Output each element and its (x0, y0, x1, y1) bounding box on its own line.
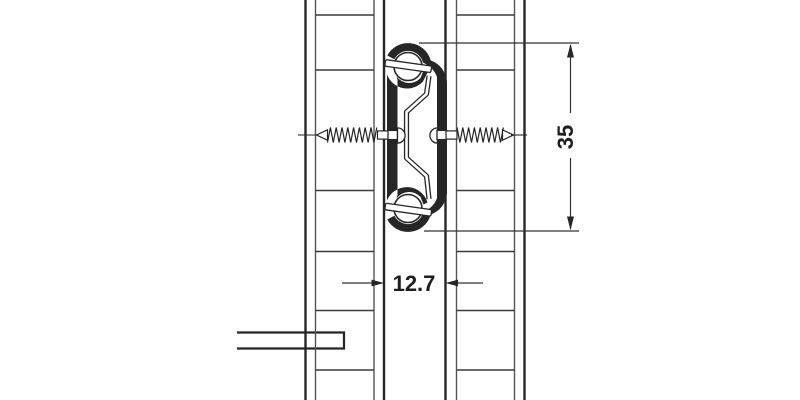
arrowhead-up-icon (567, 44, 574, 58)
right-panel-rungs (457, 15, 515, 370)
arrowhead-left-icon (446, 280, 459, 287)
screw-collar-right (437, 130, 447, 139)
screw-thread-left (328, 128, 377, 143)
ball-cage (407, 76, 430, 199)
screw-neck-right (446, 131, 457, 139)
right-panel (446, 0, 525, 400)
arrowhead-down-icon (567, 217, 574, 231)
screw-tip-left (317, 130, 328, 140)
dimension-width-label: 12.7 (393, 271, 436, 296)
dimension-width: 12.7 (342, 271, 483, 296)
arrowhead-right-icon (372, 280, 385, 287)
dimension-height-label: 35 (553, 125, 578, 149)
screw-neck-left (378, 131, 389, 139)
drawer-bottom-panel (237, 333, 344, 349)
drawer-slide-cross-section-drawing: 35 12.7 (0, 0, 800, 400)
screw-thread-right (457, 128, 503, 143)
screw-collar-left (388, 130, 398, 139)
left-panel-rungs (316, 15, 375, 370)
technical-drawing-page: 35 12.7 (0, 0, 800, 400)
